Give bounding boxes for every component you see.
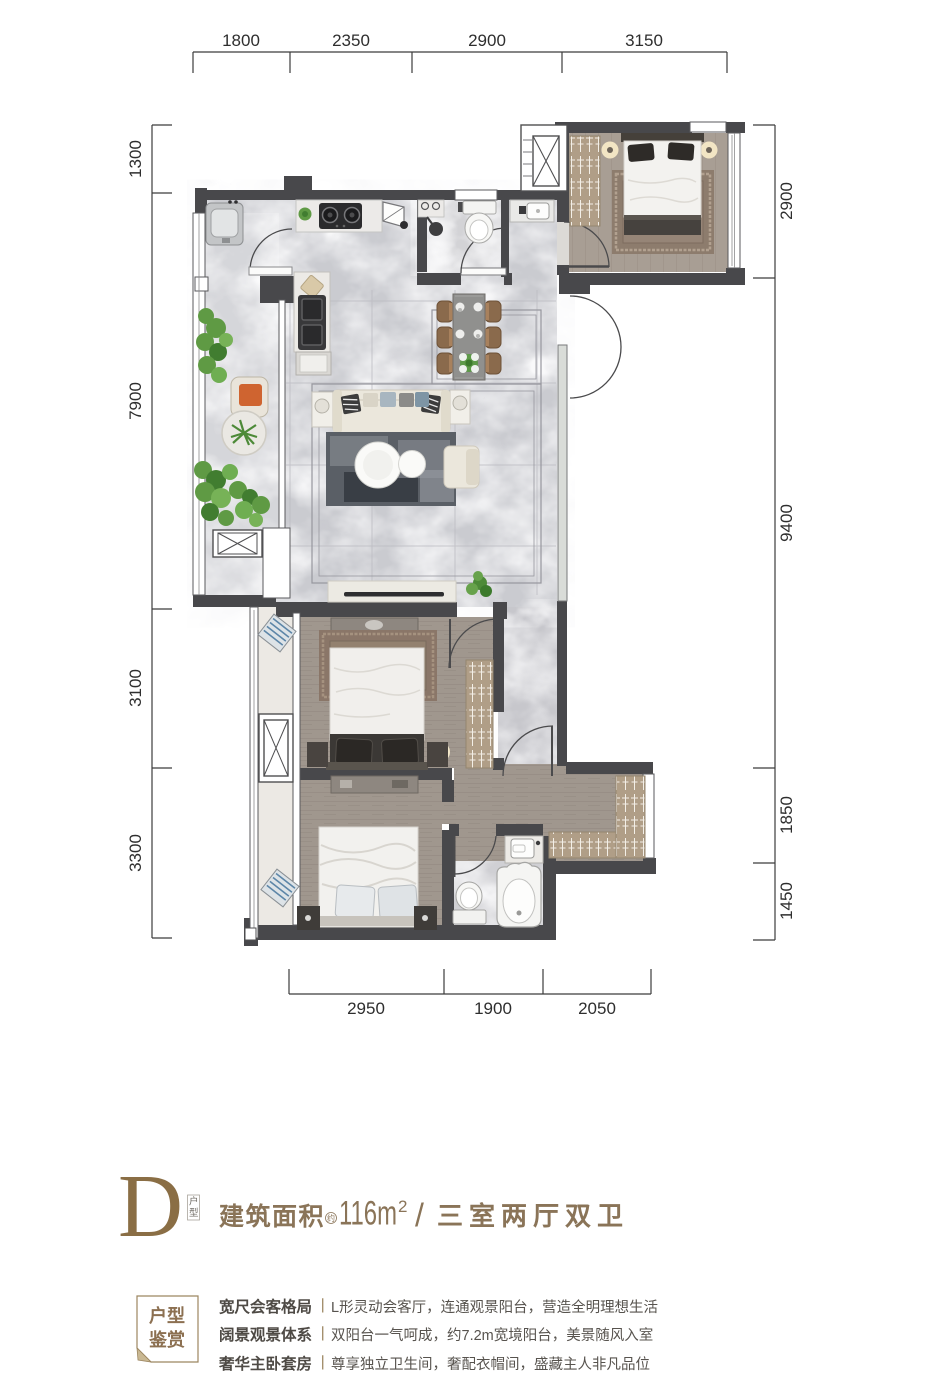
svg-text:1850: 1850 [777, 796, 796, 834]
svg-text:116m: 116m [339, 1195, 397, 1233]
svg-text:2350: 2350 [332, 31, 370, 50]
svg-text:L形灵动会客厅，连通观景阳台，营造全明理想生活: L形灵动会客厅，连通观景阳台，营造全明理想生活 [331, 1298, 658, 1316]
svg-text:2950: 2950 [347, 999, 385, 1018]
svg-text:户型: 户型 [149, 1305, 185, 1326]
svg-text:2050: 2050 [578, 999, 616, 1018]
svg-text:三室两厅双卫: 三室两厅双卫 [437, 1201, 629, 1231]
svg-text:约: 约 [327, 1213, 335, 1223]
svg-text:7900: 7900 [126, 382, 145, 420]
svg-text:建筑面积: 建筑面积 [219, 1202, 325, 1231]
svg-text:3100: 3100 [126, 669, 145, 707]
svg-text:1800: 1800 [222, 31, 260, 50]
svg-text:1450: 1450 [777, 882, 796, 920]
svg-text:1900: 1900 [474, 999, 512, 1018]
svg-text:3300: 3300 [126, 834, 145, 872]
svg-text:D: D [118, 1157, 183, 1256]
svg-text:丨: 丨 [315, 1298, 331, 1315]
svg-text:双阳台一气呵成，约7.2m宽境阳台，美景随风入室: 双阳台一气呵成，约7.2m宽境阳台，美景随风入室 [331, 1326, 653, 1344]
svg-text:丨: 丨 [315, 1355, 331, 1372]
svg-text:奢华主卧套房: 奢华主卧套房 [218, 1354, 312, 1373]
svg-text:宽尺会客格局: 宽尺会客格局 [219, 1297, 312, 1316]
svg-text:丨: 丨 [315, 1326, 331, 1343]
svg-text:2900: 2900 [468, 31, 506, 50]
svg-text:/: / [415, 1197, 424, 1233]
svg-text:3150: 3150 [625, 31, 663, 50]
svg-text:鉴赏: 鉴赏 [148, 1329, 185, 1350]
svg-text:2: 2 [398, 1197, 407, 1216]
svg-text:户: 户 [189, 1196, 199, 1208]
svg-text:9400: 9400 [777, 504, 796, 542]
svg-text:阔景观景体系: 阔景观景体系 [219, 1325, 312, 1344]
svg-text:尊享独立卫生间，奢配衣帽间，盛藏主人非凡品位: 尊享独立卫生间，奢配衣帽间，盛藏主人非凡品位 [331, 1356, 650, 1373]
svg-text:型: 型 [189, 1208, 199, 1219]
svg-text:1300: 1300 [126, 140, 145, 178]
svg-text:2900: 2900 [777, 182, 796, 220]
